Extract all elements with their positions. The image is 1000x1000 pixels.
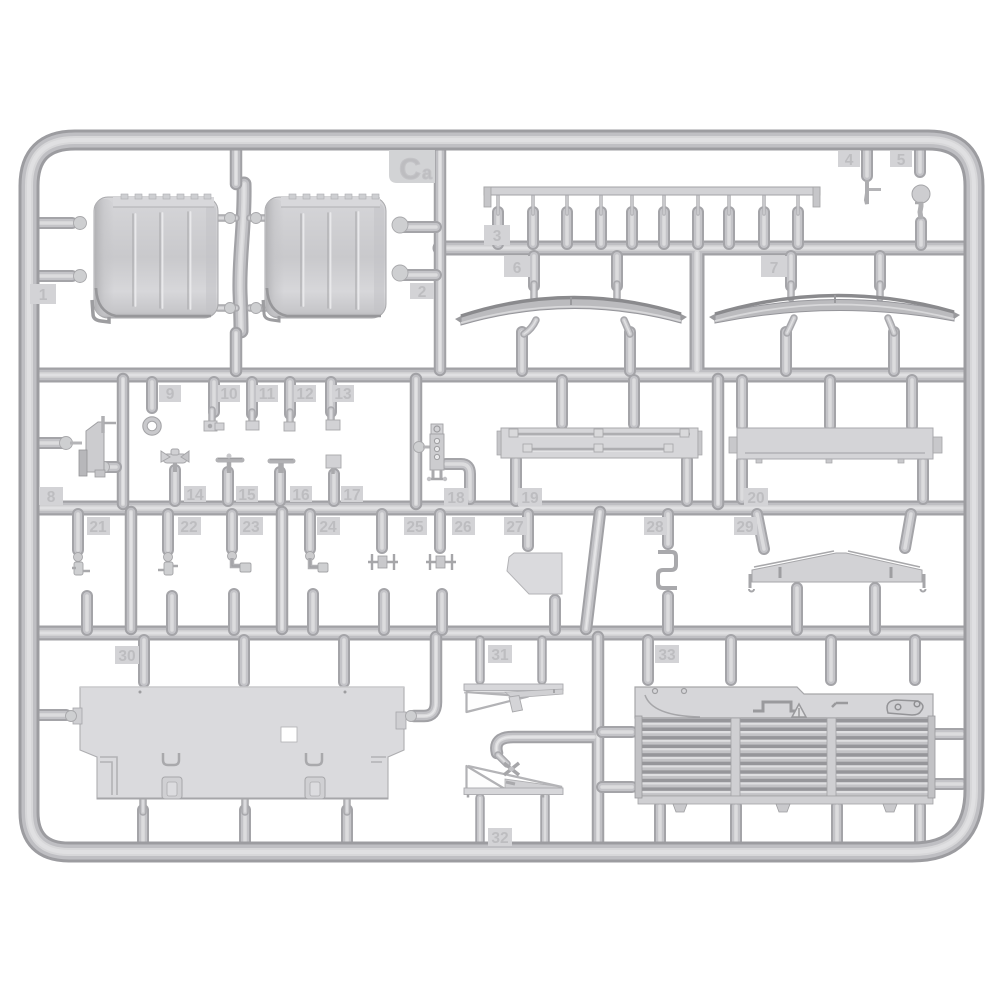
svg-text:9: 9: [166, 386, 175, 403]
svg-text:3: 3: [493, 228, 502, 245]
svg-text:13: 13: [334, 386, 352, 403]
svg-text:26: 26: [454, 519, 472, 536]
svg-text:8: 8: [47, 489, 56, 506]
svg-text:4: 4: [845, 152, 854, 169]
svg-text:2: 2: [418, 284, 427, 301]
svg-text:C: C: [399, 153, 421, 186]
svg-text:17: 17: [343, 487, 360, 504]
svg-text:33: 33: [658, 647, 676, 664]
svg-text:12: 12: [296, 386, 313, 403]
svg-text:18: 18: [447, 490, 465, 507]
svg-text:23: 23: [242, 519, 260, 536]
svg-text:5: 5: [897, 152, 906, 169]
svg-text:6: 6: [513, 260, 522, 277]
svg-text:30: 30: [118, 648, 135, 665]
svg-text:a: a: [422, 163, 433, 183]
svg-text:31: 31: [491, 647, 509, 664]
svg-text:7: 7: [770, 260, 779, 277]
svg-text:32: 32: [491, 830, 508, 847]
svg-text:1: 1: [39, 287, 48, 304]
svg-text:15: 15: [238, 487, 256, 504]
svg-text:11: 11: [259, 386, 276, 403]
svg-text:19: 19: [521, 490, 539, 507]
svg-text:22: 22: [180, 519, 197, 536]
svg-text:24: 24: [319, 519, 337, 536]
svg-text:10: 10: [220, 386, 237, 403]
svg-text:28: 28: [646, 519, 664, 536]
svg-text:27: 27: [506, 519, 523, 536]
svg-text:29: 29: [736, 519, 754, 536]
svg-text:21: 21: [89, 519, 107, 536]
svg-text:20: 20: [747, 490, 764, 507]
svg-text:16: 16: [292, 487, 310, 504]
svg-text:25: 25: [406, 519, 424, 536]
svg-text:14: 14: [186, 487, 204, 504]
